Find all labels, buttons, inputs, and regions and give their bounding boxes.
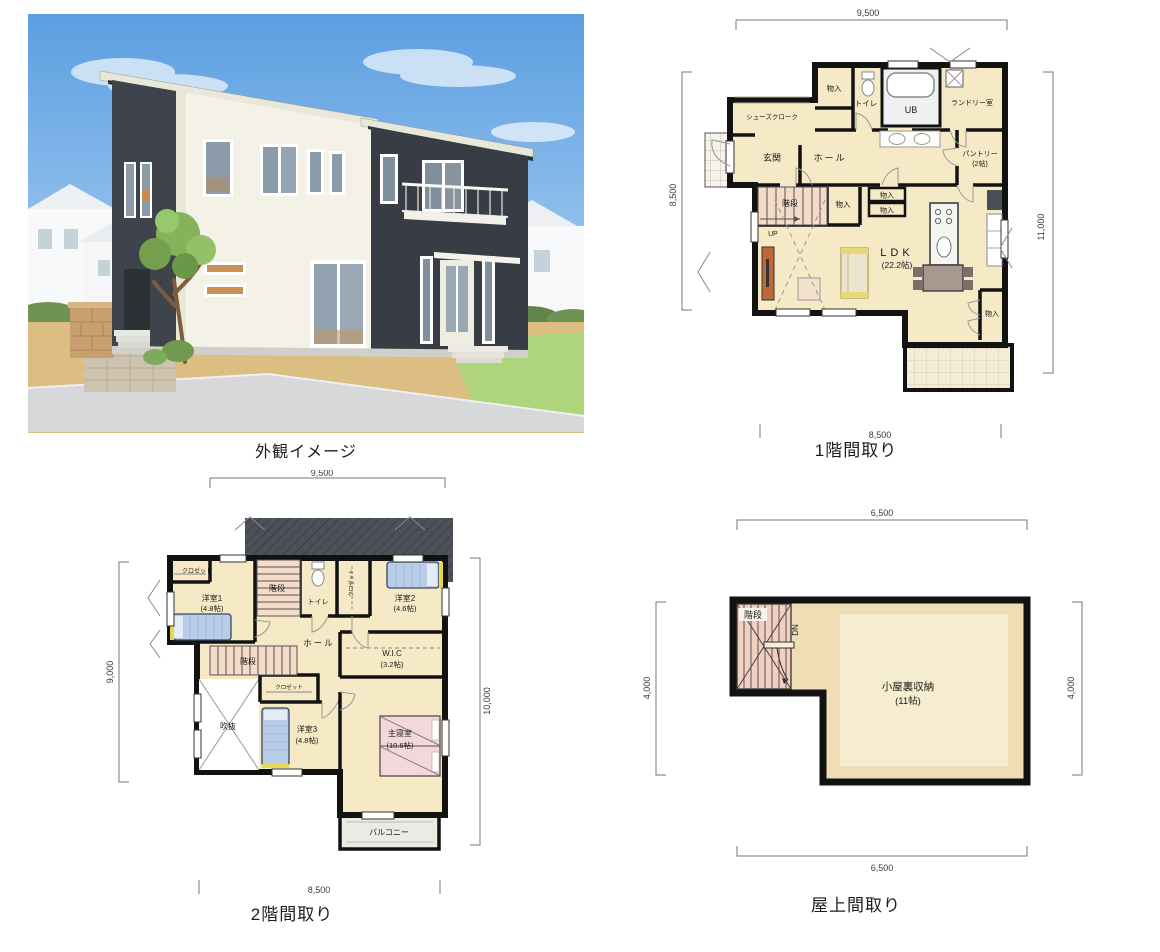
fridge-icon bbox=[987, 190, 1002, 210]
sofa-icon bbox=[841, 248, 868, 298]
f2-label-toilet: トイレ bbox=[308, 599, 329, 606]
floor2-plan: 9,500 9,000 10,000 8,500 bbox=[100, 470, 560, 952]
f1-label-laundry: ランドリー室 bbox=[951, 98, 993, 107]
f1-label-pantry: パントリー bbox=[962, 150, 997, 158]
f2-label-balcony: バルコニー bbox=[369, 828, 409, 837]
floor1-plan: 9,500 8,500 11,000 8,500 bbox=[650, 0, 1160, 462]
f1-label-stairs: 階段 bbox=[782, 198, 798, 208]
f1-dim-top: 9,500 bbox=[857, 8, 880, 18]
f1-label-up: UP bbox=[768, 231, 778, 238]
f2-label-room2-size: (4.6帖) bbox=[394, 603, 417, 613]
f2-label-room2: 洋室2 bbox=[395, 593, 416, 603]
f2-label-room3-size: (4.8帖) bbox=[296, 735, 319, 745]
f2-dim-top: 9,500 bbox=[311, 470, 334, 478]
f1-label-bath: UB bbox=[905, 105, 918, 115]
f1-label-storage-right: 物入 bbox=[985, 309, 999, 318]
shrub bbox=[162, 340, 194, 362]
tv-board-icon bbox=[762, 247, 774, 300]
cupboard-icon bbox=[987, 214, 1002, 266]
f2-dim-left: 9,000 bbox=[105, 661, 115, 684]
f1-label-hall: ホール bbox=[813, 153, 846, 163]
f2-label-stairs-mid: 階段 bbox=[240, 656, 256, 666]
f2-label-wic: W.I.C bbox=[382, 649, 402, 658]
roof-title: 屋上間取り bbox=[811, 896, 901, 915]
roof-label-attic-size: (11帖) bbox=[895, 695, 921, 707]
f2-label-wic-size: (3.2帖) bbox=[381, 659, 404, 669]
f2-label-void: 吹抜 bbox=[220, 721, 236, 731]
f2-label-closet2: クロゼット bbox=[347, 569, 355, 597]
f1-dim-right: 11,000 bbox=[1036, 214, 1046, 241]
roof-label-dn: DN bbox=[791, 624, 800, 636]
f1-label-ldk-size: (22.2帖) bbox=[882, 260, 913, 270]
floor2-title: 2階間取り bbox=[251, 905, 333, 924]
f2-label-master: 主寝室 bbox=[388, 728, 412, 738]
f1-label-ldk: LDK bbox=[880, 247, 913, 259]
bed-room2-icon bbox=[387, 562, 443, 588]
exterior-render bbox=[28, 14, 584, 433]
roof-dim-top: 6,500 bbox=[871, 508, 894, 518]
f2-label-closet3: クロゼット bbox=[275, 683, 303, 691]
f2-label-stairs-upper: 階段 bbox=[269, 583, 285, 593]
f1-label-shoe-closet: シューズクローク bbox=[746, 112, 798, 121]
f1-label-toilet: トイレ bbox=[855, 99, 878, 108]
f1-label-entrance: 玄関 bbox=[763, 152, 781, 163]
f2-label-closet1: クロゼット bbox=[182, 567, 212, 575]
roof-label-attic: 小屋裏収納 bbox=[882, 680, 935, 693]
f1-bath-unit bbox=[882, 68, 940, 126]
left-steps bbox=[114, 330, 150, 348]
floor1-title: 1階間取り bbox=[815, 441, 897, 460]
f2-toilet-icon bbox=[312, 562, 324, 586]
f2-dim-right: 10,000 bbox=[482, 687, 492, 715]
roof-label-stairs: 階段 bbox=[744, 609, 762, 620]
roof-dim-right: 4,000 bbox=[1066, 677, 1076, 700]
stone-wall bbox=[68, 302, 116, 358]
bathtub-icon bbox=[887, 73, 934, 97]
f1-label-storage-top: 物入 bbox=[827, 83, 842, 93]
f2-label-hall: ホール bbox=[303, 638, 335, 648]
f2-label-room3: 洋室3 bbox=[297, 724, 318, 734]
roof-dim-left: 4,000 bbox=[642, 677, 652, 700]
sink-icon bbox=[937, 237, 951, 257]
f1-label-storage-stairs: 物入 bbox=[836, 199, 851, 209]
roof-plan: 6,500 4,000 4,000 6,500 階段 DN 小屋裏収納 (11帖… bbox=[640, 490, 1160, 952]
f1-label-pantry-size: (2帖) bbox=[972, 159, 988, 168]
f1-label-storage-a: 物入 bbox=[880, 191, 894, 200]
side-table-icon bbox=[798, 278, 820, 300]
f2-dim-bottom: 8,500 bbox=[308, 885, 331, 895]
sliding-door bbox=[310, 260, 366, 348]
exterior-caption: 外観イメージ bbox=[28, 438, 584, 462]
roof-dim-bottom: 6,500 bbox=[871, 863, 894, 873]
bed-room1-icon bbox=[170, 614, 231, 640]
f2-label-room1-size: (4.8帖) bbox=[201, 603, 224, 613]
f2-label-master-size: (10.6帖) bbox=[386, 740, 414, 750]
roof-stairs: 階段 DN bbox=[737, 604, 800, 689]
f1-terrace bbox=[905, 345, 1012, 390]
f2-label-room1: 洋室1 bbox=[202, 593, 223, 603]
vanity-icon bbox=[880, 131, 940, 147]
washer-icon bbox=[946, 70, 963, 87]
f1-label-storage-b: 物入 bbox=[880, 206, 894, 215]
f1-dim-bottom: 8,500 bbox=[869, 430, 892, 440]
toilet-icon bbox=[862, 72, 874, 96]
bed-room3-icon bbox=[262, 708, 289, 768]
f1-dim-left: 8,500 bbox=[668, 184, 678, 207]
